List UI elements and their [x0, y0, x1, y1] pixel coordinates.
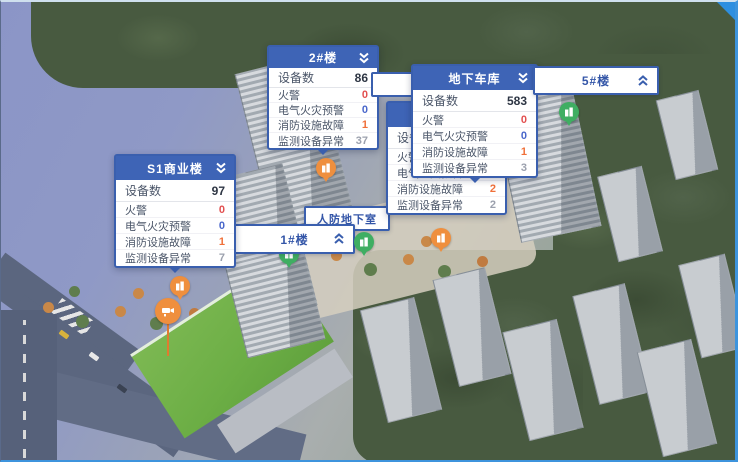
stat-label: 设备数 — [278, 69, 314, 86]
stat-label: 监测设备异常 — [422, 160, 488, 176]
stat-row-fire-alarm: 火警 0 — [116, 202, 234, 218]
stat-label: 设备数 — [422, 92, 458, 109]
collapsed-panel-bar-1[interactable]: 1#楼 — [234, 224, 355, 254]
bar-label: 1#楼 — [280, 231, 308, 248]
stat-label: 火警 — [125, 202, 147, 218]
stat-row-facility-fault: 消防设施故障 1 — [116, 234, 234, 250]
chevron-double-down-icon[interactable] — [357, 51, 371, 65]
stat-row-monitor-abnormal: 监测设备异常 2 — [388, 197, 505, 213]
chevron-double-down-icon[interactable] — [214, 161, 228, 175]
stat-label: 监测设备异常 — [278, 133, 344, 149]
stat-row-monitor-abnormal: 监测设备异常 3 — [413, 160, 536, 176]
stat-label: 消防设施故障 — [422, 144, 488, 160]
building-icon — [321, 163, 331, 173]
bar-label: 5#楼 — [582, 72, 610, 89]
stat-value: 0 — [362, 104, 368, 116]
panel-header: 地下车库 — [413, 66, 536, 90]
panel-title: 地下车库 — [448, 70, 500, 87]
stat-row-facility-fault: 消防设施故障 1 — [269, 118, 377, 133]
stat-row-devices: 设备数 97 — [116, 180, 234, 202]
building-stat-panel-garage: 地下车库 设备数 583 火警 0 电气火灾预警 0 消防设施故障 1 监测设备… — [411, 64, 538, 178]
stat-label: 电气火灾预警 — [125, 218, 191, 234]
stat-value: 0 — [362, 89, 368, 101]
stat-row-electrical-warning: 电气火灾预警 0 — [413, 128, 536, 144]
stat-label: 监测设备异常 — [397, 197, 463, 213]
stat-value: 1 — [521, 146, 527, 158]
camera-icon — [161, 305, 175, 317]
stat-label: 消防设施故障 — [278, 117, 344, 133]
building-icon — [436, 233, 446, 243]
corner-fold-icon[interactable] — [717, 2, 735, 20]
building-icon — [175, 281, 185, 291]
panel-header: 2#楼 — [269, 47, 377, 68]
stat-row-facility-fault: 消防设施故障 2 — [388, 181, 505, 197]
stat-label: 火警 — [422, 112, 444, 128]
stat-value: 7 — [219, 252, 225, 264]
stat-row-monitor-abnormal: 监测设备异常 7 — [116, 250, 234, 266]
stat-value: 0 — [219, 204, 225, 216]
stat-row-electrical-warning: 电气火灾预警 0 — [116, 218, 234, 234]
building-stat-panel-2: 2#楼 设备数 86 火警 0 电气火灾预警 0 消防设施故障 1 监测设备异常… — [267, 45, 379, 150]
road-lane-line — [23, 320, 26, 458]
stat-row-devices: 设备数 583 — [413, 90, 536, 112]
stat-label: 监测设备异常 — [125, 250, 191, 266]
panel-title: S1商业楼 — [147, 160, 203, 177]
camera-marker-pole — [167, 322, 169, 356]
stat-value: 583 — [507, 94, 527, 108]
stat-value: 37 — [356, 135, 368, 147]
stat-row-electrical-warning: 电气火灾预警 0 — [269, 103, 377, 118]
stat-value: 2 — [490, 199, 496, 211]
stat-label: 消防设施故障 — [125, 234, 191, 250]
building-marker-pin[interactable] — [559, 102, 579, 122]
stat-label: 消防设施故障 — [397, 181, 463, 197]
stat-label: 电气火灾预警 — [422, 128, 488, 144]
stat-label: 火警 — [278, 87, 300, 103]
camera-marker-pin[interactable] — [155, 298, 181, 324]
building-stat-panel-s1: S1商业楼 设备数 97 火警 0 电气火灾预警 0 消防设施故障 1 监测设备… — [114, 154, 236, 268]
stat-value: 0 — [521, 130, 527, 142]
stat-value: 97 — [212, 184, 225, 198]
roadside-trees — [43, 302, 54, 313]
stat-row-facility-fault: 消防设施故障 1 — [413, 144, 536, 160]
stat-row-fire-alarm: 火警 0 — [413, 112, 536, 128]
building-marker-pin[interactable] — [431, 228, 451, 248]
stat-row-monitor-abnormal: 监测设备异常 37 — [269, 133, 377, 148]
stat-value: 86 — [355, 71, 368, 85]
stat-value: 1 — [219, 236, 225, 248]
building-marker-pin[interactable] — [354, 232, 374, 252]
stat-value: 1 — [362, 119, 368, 131]
stat-value: 0 — [219, 220, 225, 232]
panel-title: 2#楼 — [309, 49, 337, 66]
road — [1, 310, 57, 462]
stat-row-fire-alarm: 火警 0 — [269, 88, 377, 103]
building-icon — [564, 107, 574, 117]
stat-label: 电气火灾预警 — [278, 102, 344, 118]
panel-header: S1商业楼 — [116, 156, 234, 180]
chevron-double-up-icon[interactable] — [636, 74, 650, 88]
chevron-double-down-icon[interactable] — [516, 71, 530, 85]
stat-value: 2 — [490, 183, 496, 195]
stat-value: 3 — [521, 162, 527, 174]
stat-row-devices: 设备数 86 — [269, 68, 377, 88]
stat-label: 设备数 — [125, 182, 161, 199]
chevron-double-up-icon[interactable] — [332, 232, 346, 246]
stat-value: 0 — [521, 114, 527, 126]
fire-monitoring-map-view: 2#楼 设备数 86 火警 0 电气火灾预警 0 消防设施故障 1 监测设备异常… — [0, 0, 738, 462]
building-icon — [359, 237, 369, 247]
collapsed-panel-bar-5[interactable]: 5#楼 — [533, 66, 659, 95]
